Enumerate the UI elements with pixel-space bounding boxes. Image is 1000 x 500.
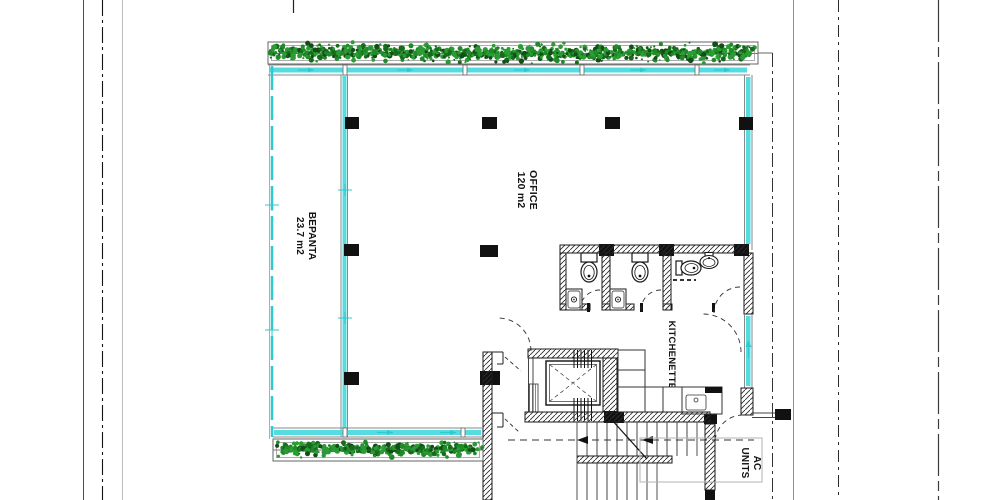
column [739,117,753,130]
foliage-dot [468,52,471,55]
foliage-dot [647,61,649,63]
foliage-dot [364,55,368,59]
foliage-dot [587,49,589,51]
kitchenette-label: KITCHENETTE [666,321,677,390]
floor-plan-canvas: ΒΕΡΑΝΤΑ 23.7 m2 OFFICE 120 m2 KITCHENETT… [0,0,1000,500]
foliage-dot [356,49,359,52]
foliage-dot [576,56,579,59]
hall-north-wall [525,412,710,422]
foliage-dot [311,55,314,58]
foliage-dot [646,46,649,49]
kitchen-sink-basin [686,395,706,410]
foliage-dot [556,52,558,54]
mullion [343,65,347,75]
foliage-dot [512,48,514,50]
stall-south-wall [663,304,672,310]
foliage-dot [453,59,455,61]
wall-hatched [744,253,753,314]
foliage-dot [617,52,619,54]
foliage-dot [648,49,652,53]
foliage-dot [351,40,355,44]
foliage-dot [382,449,385,452]
stairwell [508,419,754,500]
foliage-dot [383,59,388,64]
office-area-label: 120 m2 [515,172,527,209]
foliage-dot [555,58,560,63]
foliage-dot [719,43,724,48]
foliage-dot [386,442,391,447]
top-glass-wall [268,65,750,75]
foliage-dot [723,60,725,62]
toilet-2 [632,253,648,282]
foliage-dot [322,48,324,50]
foliage-dot [684,49,688,53]
door-swing-arc [641,290,661,310]
foliage-dot [610,55,612,57]
foliage-dot [311,441,315,445]
foliage-dot [531,62,533,64]
foliage-dot [302,48,305,51]
mullion [695,65,699,75]
foliage-dot [492,44,496,48]
foliage-dot [749,52,751,54]
foliage-dot [497,51,500,54]
foliage-dot [584,50,586,52]
foliage-dot [454,442,456,444]
foliage-dot [390,455,392,457]
kitchen-faucet [694,398,698,402]
foliage-dot [401,451,404,454]
foliage-dot [302,57,304,59]
toilet-1 [581,253,597,282]
foliage-dot [464,444,468,448]
foliage-dot [350,445,355,450]
foliage-dot [409,49,413,53]
foliage-dot [354,451,356,453]
foliage-dot [306,442,311,447]
door-swing-arc [714,287,740,313]
foliage-dot [574,49,577,52]
counterweight [529,384,538,412]
foliage-dot [332,47,335,50]
foliage-dot [293,446,298,451]
foliage-dot [735,48,737,50]
foliage-dot [428,52,433,57]
ac-wall-block [775,409,791,420]
bathroom-west-wall [560,253,566,310]
foliage-dot [725,56,727,58]
foliage-dot [425,47,428,50]
foliage-dot [519,50,521,52]
foliage-dot [654,56,658,60]
foliage-dot [565,52,568,55]
glass-pane-strip [270,68,747,73]
foliage-dot [738,45,741,48]
foliage-dot [516,52,520,56]
top-planter [268,40,758,65]
foliage-dot [304,50,308,54]
stair-break-line [611,419,647,459]
elevator-north-wall [528,349,618,358]
foliage-dot [343,48,348,53]
column [344,244,359,256]
ac-units-label-line1: AC [751,456,762,471]
foliage-dot [729,49,733,53]
foliage-dot [579,46,581,48]
counter-unit [663,387,682,412]
foliage-dot [279,52,281,54]
foliage-dot [276,440,280,444]
foliage-dot [624,56,628,60]
foliage-dot [750,47,755,52]
foliage-dot [435,47,439,51]
foliage-dot [302,54,304,56]
foliage-dot [558,44,563,49]
foliage-dot [671,53,674,56]
foliage-dot [387,44,390,47]
foliage-dot [309,43,314,48]
foliage-dot [608,57,611,60]
foliage-dot [412,446,415,449]
foliage-dot [480,445,484,449]
counter-unit [645,387,663,412]
foliage-dot [313,48,318,53]
foliage-dot [659,42,663,46]
foliage-dot [568,53,570,55]
foliage-dot [633,47,635,49]
door-leaf [505,357,521,371]
foliage-dot [305,451,310,456]
foliage-dot [536,51,539,54]
foliage-dot [351,48,355,52]
foliage-dot [638,47,642,51]
door-leaf [505,419,519,432]
foliage-dot [457,55,459,57]
bathroom-north-wall [560,245,748,253]
foliage-dot [712,58,717,63]
foliage-dot [430,47,432,49]
foliage-dot [665,58,669,62]
foliage-dot [494,60,497,63]
foliage-dot [719,56,721,58]
foliage-dot [457,51,461,55]
foliage-dot [562,41,565,44]
foliage-dot [688,58,694,64]
direction-arrow [577,436,588,444]
foliage-dot [456,452,462,458]
counter-unit [618,387,645,412]
foliage-dot [543,51,548,56]
mullion [580,65,584,75]
foliage-dot [335,51,337,53]
foliage-dot [361,43,366,48]
foliage-dot [351,453,354,456]
foliage-dot [680,56,685,61]
foliage-dot [275,444,279,448]
foliage-dot [521,56,523,58]
direction-arrow [642,436,653,444]
foliage-dot [549,53,551,55]
hall-east-wall [705,424,715,490]
foliage-dot [635,57,638,60]
foliage-dot [472,442,477,447]
stair-landing-wall [577,456,672,463]
foliage-dot [339,49,341,51]
foliage-dot [501,47,504,50]
foliage-dot [329,447,332,450]
foliage-dot [525,46,530,51]
foliage-dot [438,52,440,54]
foliage-dot [614,53,618,57]
mullion [343,428,347,437]
foliage-dot [497,46,499,48]
foliage-dot [606,47,608,49]
foliage-dot [659,59,661,61]
foliage-dot [723,49,728,54]
foliage-dot [606,49,609,52]
foliage-dot [405,442,409,446]
foliage-dot [601,46,605,50]
foliage-dot [403,50,405,52]
foliage-dot [378,50,380,52]
foliage-dot [380,446,382,448]
foliage-dot [319,444,323,448]
foliage-dot [521,52,524,55]
foliage-dot [372,50,378,56]
foliage-dot [435,449,438,452]
foliage-dot [426,444,430,448]
counter-unit [618,350,645,370]
foliage-dot [561,60,565,64]
wall-end [705,490,715,500]
foliage-dot [436,453,439,456]
foliage-dot [433,50,436,53]
foliage-dot [630,56,632,58]
foliage-dot [710,53,714,57]
foliage-dot [374,44,380,50]
foliage-dot [471,54,474,57]
foliage-dot [706,57,709,60]
foliage-dot [551,42,555,46]
hall-west-wall [483,352,492,500]
column [345,117,359,129]
foliage-dot [421,47,425,51]
foliage-dot [274,51,277,54]
foliage-dot [575,61,579,65]
foliage-dot [600,51,602,53]
foliage-dot [423,60,426,63]
foliage-dot [283,449,288,454]
foliage-dot [407,59,409,61]
foliage-dot [476,447,480,451]
foliage-dot [450,47,454,51]
foliage-dot [636,45,639,48]
counter-unit [618,370,645,387]
foliage-dot [299,441,304,446]
foliage-dot [454,54,456,56]
foliage-dot [307,448,310,451]
stall-fixture-1 [566,289,582,310]
foliage-dot [695,55,698,58]
foliage-dot [297,53,302,58]
foliage-dot [270,57,272,59]
foliage-dot [610,50,614,54]
column [482,117,497,129]
foliage-dot [445,449,448,452]
foliage-dot [315,450,319,454]
foliage-dot [721,53,723,55]
foliage-dot [341,440,346,445]
foliage-dot [539,46,541,48]
foliage-dot [629,47,631,49]
foliage-dot [465,58,470,63]
foliage-dot [496,53,499,56]
foliage-dot [337,59,339,61]
foliage-dot [400,443,405,448]
foliage-dot [328,44,330,46]
foliage-dot [339,57,341,59]
foliage-dot [620,51,623,54]
foliage-dot [368,45,374,51]
foliage-dot [318,43,321,46]
foliage-dot [394,51,399,56]
foliage-dot [448,56,450,58]
foliage-dot [618,47,620,49]
foliage-dot [534,54,537,57]
foliage-dot [426,57,428,59]
foliage-dot [581,55,583,57]
column [480,245,498,257]
foliage-dot [675,53,678,56]
foliage-dot [309,57,314,62]
door-jamb-frames [492,352,503,427]
foliage-dot [335,448,340,453]
foliage-dot [317,55,323,61]
foliage-dot [702,57,706,61]
foliage-dot [581,53,583,55]
foliage-dot [562,55,565,58]
foliage-dot [280,51,282,53]
foliage-dot [351,58,356,63]
foliage-dot [368,449,370,451]
foliage-dot [459,444,464,449]
veranda-label: ΒΕΡΑΝΤΑ [306,212,317,260]
foliage-dot [729,43,733,47]
stall-divider-wall [602,252,610,310]
foliage-dot [626,51,631,56]
foliage-dot [473,452,477,456]
foliage-dot [701,52,706,57]
wall-hatched [741,388,753,415]
foliage-dot [526,53,530,57]
foliage-dot [361,445,365,449]
foliage-dot [443,441,446,444]
foliage-dot [372,58,376,62]
foliage-dot [427,46,429,48]
ac-wall-lines [752,413,775,418]
foliage-dot [300,456,302,458]
foliage-dot [477,441,479,443]
foliage-dot [653,49,657,53]
veranda-area-label: 23.7 m2 [294,217,305,255]
foliage-dot [506,60,509,63]
foliage-dot [290,52,296,58]
foliage-dot [326,51,331,56]
foliage-dot [335,444,339,448]
column [344,372,359,385]
bathroom-block [560,245,748,313]
foliage-dot [277,455,280,458]
mullion [463,65,467,75]
foliage-dot [709,51,711,53]
glass-pane [746,77,751,244]
stall-fixture-2 [610,289,626,310]
office-label: OFFICE [527,170,539,210]
elevator [528,349,618,421]
foliage-dot [335,55,338,58]
foliage-dot [348,51,351,54]
foliage-dot [391,450,393,452]
foliage-dot [502,60,506,64]
foliage-dot [340,52,344,56]
foliage-dot [446,59,451,64]
foliage-dot [281,45,284,48]
appliance [705,387,722,393]
foliage-dot [374,455,376,457]
foliage-dot [650,46,652,48]
elevator-east-wall [603,358,617,412]
foliage-dot [401,52,403,54]
bottom-glass-wall [273,428,483,437]
ac-units-label-line2: UNITS [739,448,750,479]
foliage-dot [365,443,369,447]
foliage-dot [276,55,281,60]
foliage-dot [409,43,414,48]
foliage-dot [315,455,317,457]
foliage-dot [653,45,655,47]
foliage-dot [491,47,493,49]
floor-plan-page: ΒΕΡΑΝΤΑ 23.7 m2 OFFICE 120 m2 KITCHENETT… [0,0,1000,500]
foliage-dot [364,449,367,452]
foliage-dot [583,47,586,50]
foliage-dot [540,43,542,45]
stair-treads-upper [577,422,697,456]
foliage-dot [315,60,318,63]
foliage-dot [689,42,691,44]
foliage-dot [320,46,323,49]
foliage-dot [319,48,322,51]
foliage-dot [271,47,275,51]
foliage-dot [445,455,449,459]
foliage-dot [489,56,493,60]
foliage-dot [388,48,391,51]
foliage-dot [345,53,347,55]
door-swing-arc [715,415,743,443]
foliage-dot [564,48,567,51]
foliage-dot [718,60,721,63]
foliage-dot [747,51,750,54]
foliage-dot [379,43,381,45]
foliage-dot [643,49,645,51]
foliage-dot [684,44,687,47]
foliage-dot [521,47,524,50]
mullion [461,428,465,437]
toilet-3 [676,261,701,275]
door-swing-arc [498,318,531,351]
foliage-dot [336,44,340,48]
foliage-dot [332,55,335,58]
foliage-dot [363,49,367,53]
